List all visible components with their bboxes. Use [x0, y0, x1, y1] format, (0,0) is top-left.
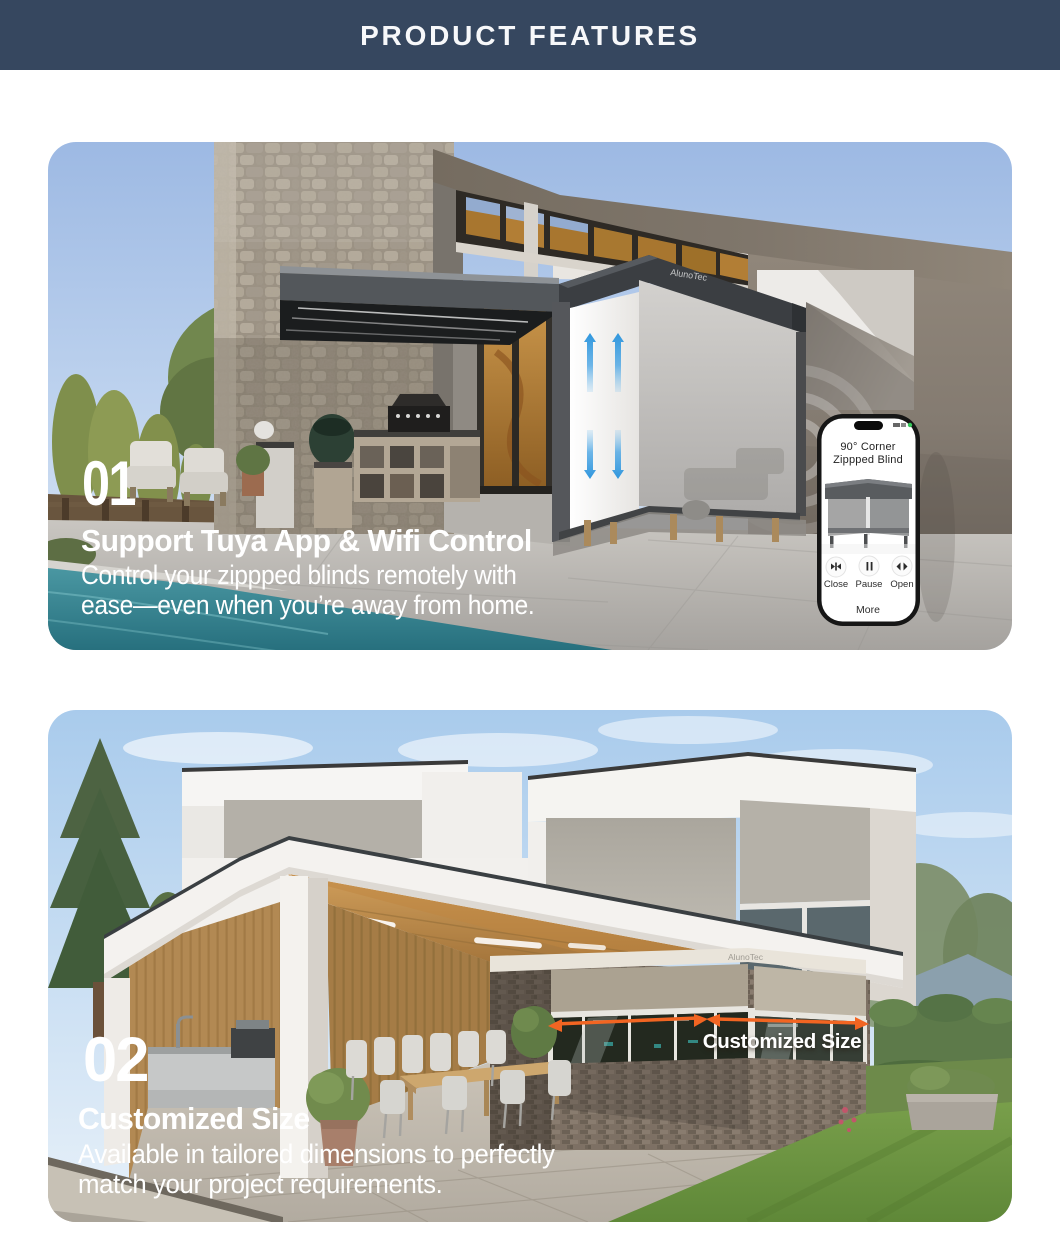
svg-text:AlunoTec: AlunoTec	[728, 952, 764, 962]
svg-text:Zippped Blind: Zippped Blind	[833, 454, 903, 466]
svg-text:Pause: Pause	[856, 579, 883, 590]
svg-text:Customized Size: Customized Size	[703, 1030, 861, 1053]
svg-text:More: More	[856, 604, 880, 616]
svg-text:Close: Close	[824, 579, 848, 590]
svg-text:90° Corner: 90° Corner	[840, 441, 895, 453]
svg-text:Open: Open	[890, 579, 913, 590]
